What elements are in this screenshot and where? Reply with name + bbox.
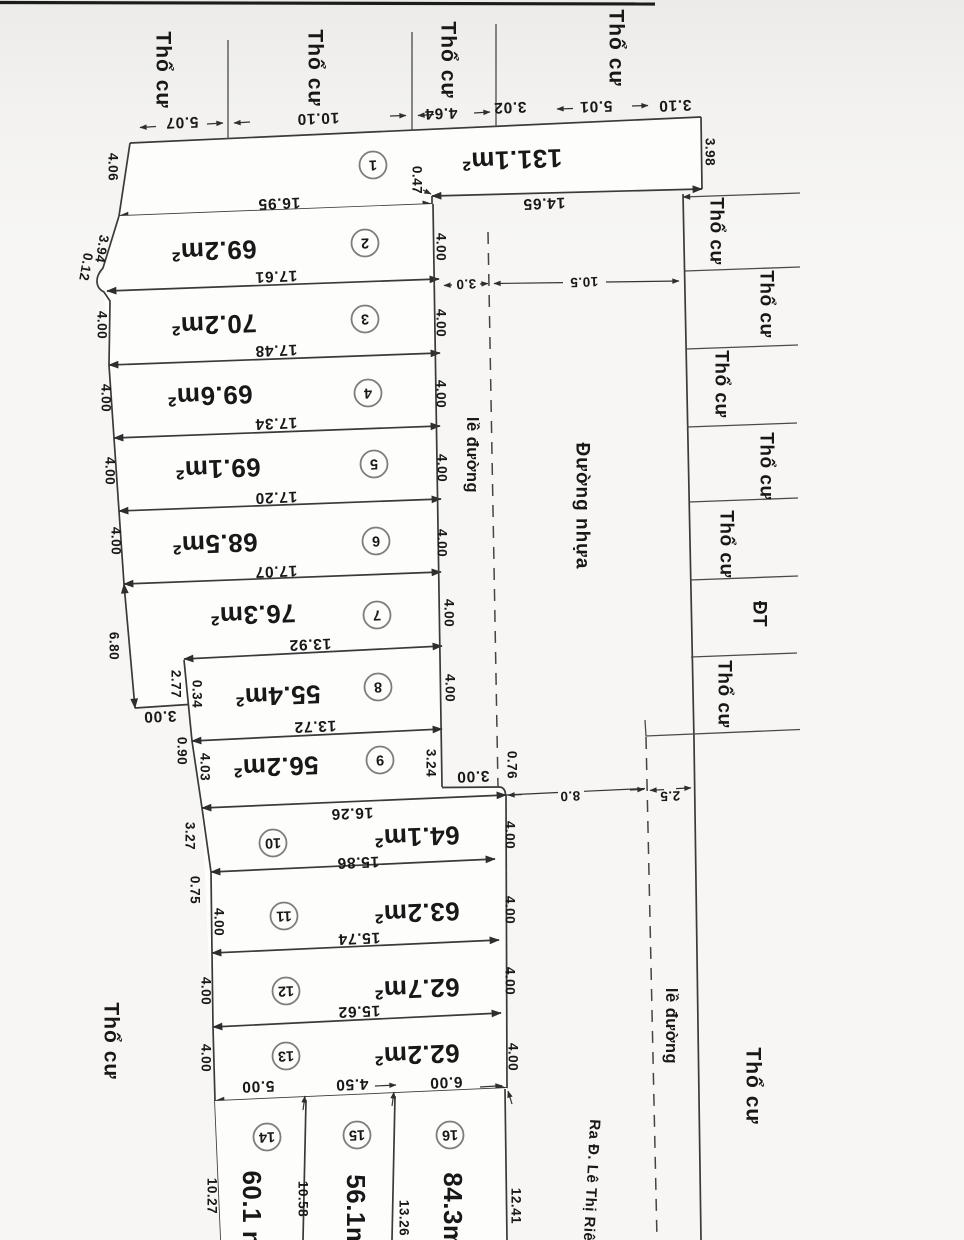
svg-text:3.0: 3.0 [456,276,477,292]
svg-text:14.65: 14.65 [523,194,566,213]
svg-text:ĐT: ĐT [749,601,770,627]
svg-text:4.00: 4.00 [435,454,450,482]
svg-text:69.1m²: 69.1m² [175,452,262,485]
svg-text:76.3m²: 76.3m² [210,598,297,631]
svg-text:4.00: 4.00 [443,674,458,702]
svg-text:2.77: 2.77 [169,670,184,698]
svg-text:11: 11 [276,907,292,924]
svg-text:4.00: 4.00 [503,821,518,849]
svg-text:17.61: 17.61 [255,267,298,286]
svg-text:4.06: 4.06 [106,153,121,181]
svg-text:10: 10 [265,834,282,851]
svg-text:10.5: 10.5 [570,274,599,290]
svg-text:0.76: 0.76 [505,751,520,779]
svg-text:Thổ cư: Thổ cư [742,1047,765,1124]
svg-text:Thổ cư: Thổ cư [304,29,327,106]
svg-text:5.00: 5.00 [241,1077,275,1095]
svg-text:10.10: 10.10 [297,109,340,128]
svg-text:12.41: 12.41 [509,1188,524,1224]
svg-text:8.0: 8.0 [560,788,581,804]
svg-text:70.2m²: 70.2m² [171,308,258,341]
svg-text:6: 6 [372,532,381,548]
svg-text:5: 5 [370,455,379,471]
svg-text:4.64: 4.64 [424,104,458,122]
svg-text:Thổ cư: Thổ cư [706,197,727,264]
svg-text:3.24: 3.24 [424,749,439,777]
svg-text:9: 9 [376,751,385,767]
svg-text:13.92: 13.92 [289,635,332,654]
svg-text:17.34: 17.34 [255,414,298,433]
svg-text:131.1m²: 131.1m² [461,143,562,177]
svg-text:12: 12 [278,982,295,999]
svg-text:4.50: 4.50 [335,1075,369,1093]
svg-text:63.2m²: 63.2m² [374,896,461,929]
svg-text:62.2m²: 62.2m² [374,1038,461,1071]
svg-text:4.00: 4.00 [503,896,518,924]
svg-text:4.03: 4.03 [198,753,213,781]
svg-text:16.26: 16.26 [331,804,374,823]
svg-text:Thổ cư: Thổ cư [711,350,732,417]
svg-text:3.02: 3.02 [493,98,527,116]
svg-text:69.2m²: 69.2m² [171,234,258,267]
svg-text:4.00: 4.00 [199,977,214,1005]
svg-text:62.7m²: 62.7m² [374,972,461,1005]
svg-text:6.00: 6.00 [429,1073,463,1091]
svg-text:13.72: 13.72 [294,717,337,736]
svg-text:13: 13 [278,1047,295,1064]
svg-text:Thổ cư: Thổ cư [716,510,737,577]
svg-text:Đường nhựa: Đường nhựa [572,442,593,569]
svg-text:17.48: 17.48 [255,341,298,360]
svg-text:Thổ cư: Thổ cư [152,31,175,108]
svg-text:3.00: 3.00 [456,767,490,785]
svg-text:4.00: 4.00 [199,1044,214,1072]
svg-text:17.20: 17.20 [255,488,298,507]
svg-text:64.1m²: 64.1m² [374,820,461,853]
svg-text:17.07: 17.07 [255,562,298,581]
svg-text:10.27: 10.27 [205,1178,220,1214]
svg-text:3.98: 3.98 [703,138,718,166]
svg-text:Thổ cư: Thổ cư [100,1002,123,1079]
svg-text:60.1 m²: 60.1 m² [237,1170,267,1240]
svg-text:8: 8 [374,678,383,694]
svg-text:4.00: 4.00 [506,1043,521,1071]
svg-text:Thổ cư: Thổ cư [714,660,735,727]
svg-text:84.3m²: 84.3m² [438,1172,468,1240]
svg-text:4.00: 4.00 [435,529,450,557]
svg-text:15.62: 15.62 [338,1002,381,1021]
svg-text:lề đường: lề đường [463,417,481,493]
svg-text:68.5m²: 68.5m² [172,527,259,560]
svg-text:10.58: 10.58 [296,1181,311,1217]
svg-text:15.86: 15.86 [337,853,380,872]
svg-text:15: 15 [349,1126,366,1143]
svg-text:4.00: 4.00 [103,457,118,485]
svg-text:7: 7 [373,606,382,622]
svg-text:4.00: 4.00 [434,233,449,261]
svg-text:3.00: 3.00 [143,707,177,725]
svg-text:4.00: 4.00 [434,380,449,408]
svg-text:Thổ cư: Thổ cư [437,21,460,98]
svg-text:1: 1 [369,156,378,172]
svg-text:5.01: 5.01 [579,97,613,115]
svg-text:4.00: 4.00 [434,309,449,337]
svg-text:5.07: 5.07 [165,113,199,131]
svg-text:14: 14 [259,1128,276,1145]
svg-text:0.90: 0.90 [175,737,190,765]
svg-text:Thổ cư: Thổ cư [605,9,628,86]
svg-text:Thổ cư: Thổ cư [756,270,777,337]
svg-text:4.00: 4.00 [99,384,114,412]
svg-text:56.1m²: 56.1m² [341,1174,371,1240]
svg-text:4.00: 4.00 [109,527,124,555]
svg-text:3.27: 3.27 [183,822,198,850]
svg-text:4.00: 4.00 [95,311,110,339]
svg-text:16: 16 [442,1126,459,1143]
svg-text:lề đường: lề đường [662,988,680,1064]
svg-text:0.75: 0.75 [188,876,203,904]
svg-text:3.10: 3.10 [658,96,692,114]
svg-text:2: 2 [361,234,370,250]
svg-text:3: 3 [361,310,370,326]
svg-text:15.74: 15.74 [338,929,381,948]
svg-text:0.34: 0.34 [190,680,205,708]
svg-text:13.26: 13.26 [397,1200,412,1236]
svg-text:69.6m²: 69.6m² [167,379,254,412]
svg-text:Thổ cư: Thổ cư [756,432,777,499]
svg-text:56.2m²: 56.2m² [233,750,320,783]
svg-text:6.80: 6.80 [107,632,122,660]
svg-text:2.5: 2.5 [660,788,681,804]
svg-text:4: 4 [364,384,373,400]
svg-text:0.47: 0.47 [410,166,425,194]
svg-text:4.00: 4.00 [503,967,518,995]
svg-text:4.00: 4.00 [442,599,457,627]
svg-text:55.4m²: 55.4m² [235,679,322,712]
svg-text:4.00: 4.00 [212,908,227,936]
